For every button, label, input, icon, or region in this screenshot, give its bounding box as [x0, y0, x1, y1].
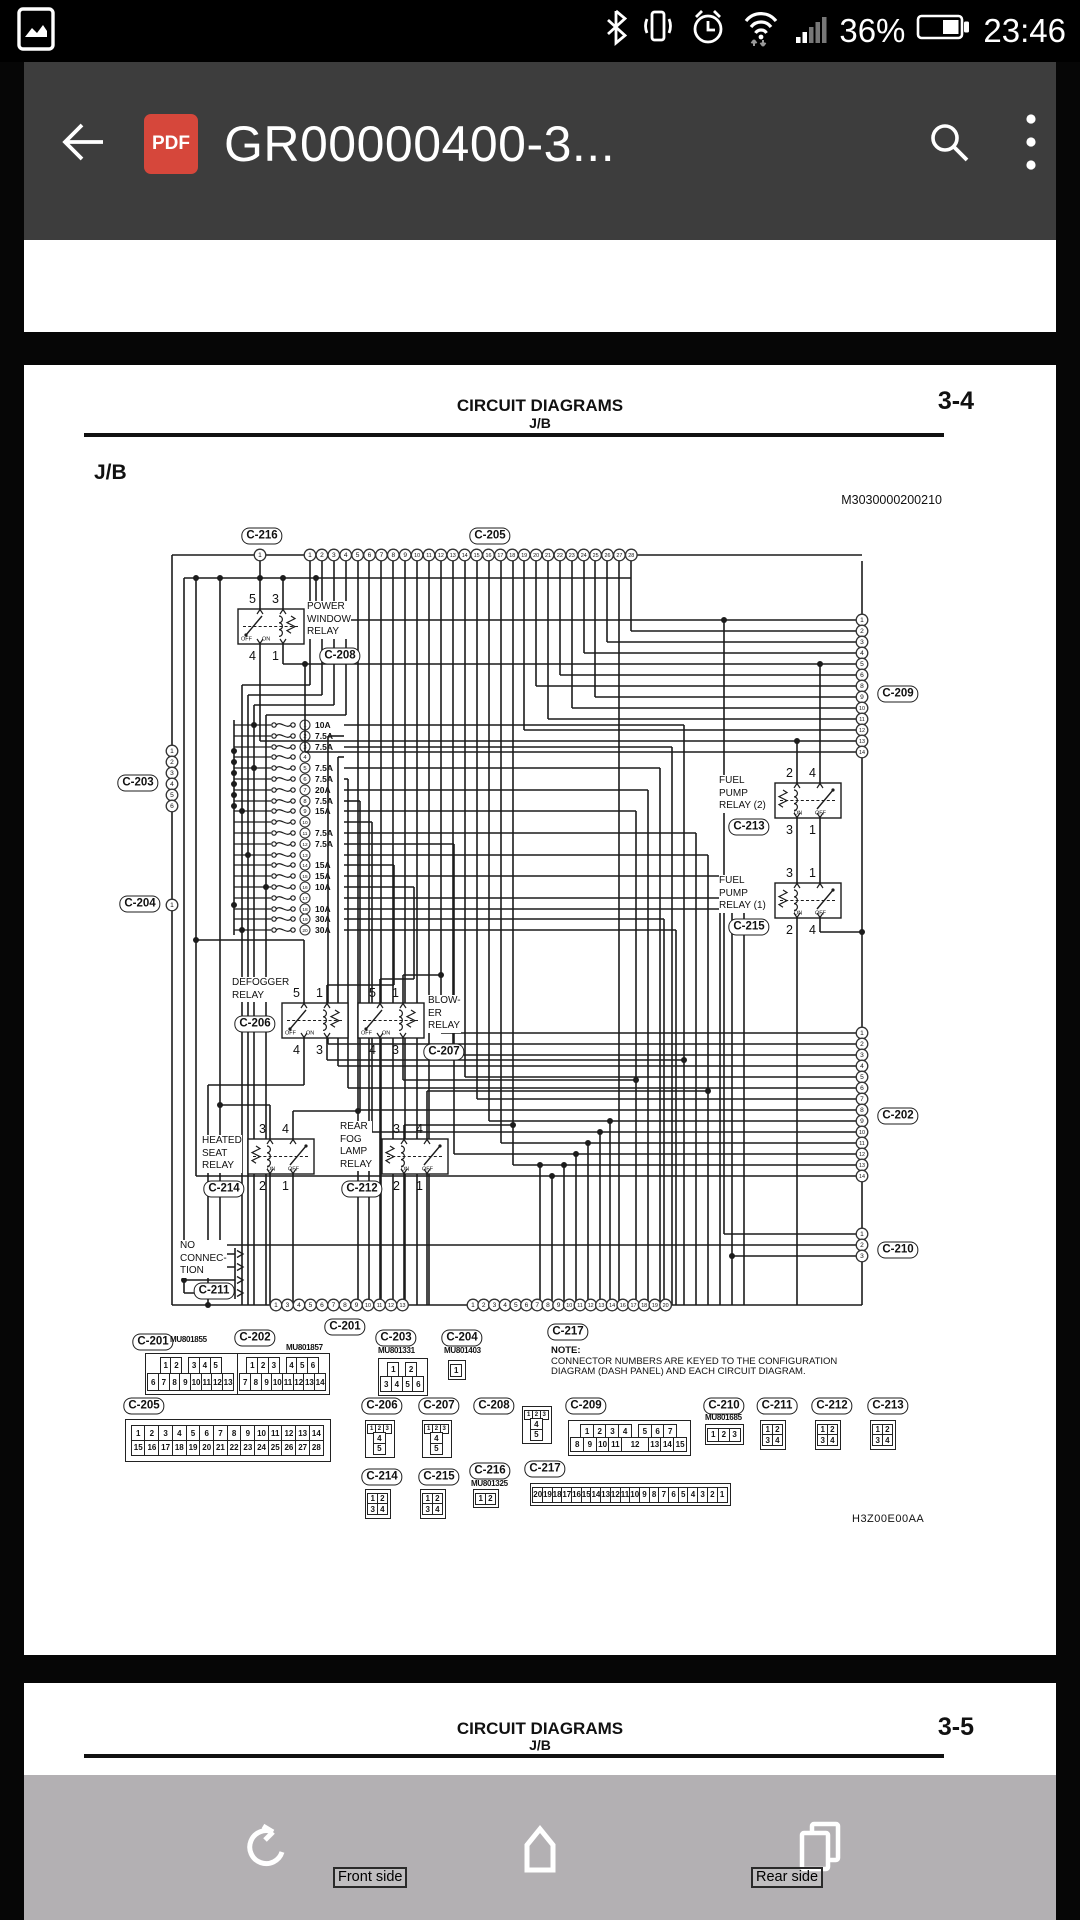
svg-text:2: 2 — [170, 759, 174, 766]
signal-icon — [794, 9, 828, 53]
pinout-label-c-213: C-213 — [867, 1398, 908, 1415]
svg-text:4: 4 — [809, 923, 816, 937]
svg-text:6: 6 — [860, 672, 864, 679]
svg-text:1: 1 — [860, 1231, 864, 1238]
pin-cell: 14 — [309, 1425, 324, 1441]
svg-text:16: 16 — [302, 885, 308, 891]
rear-side-link[interactable]: Rear side — [751, 1867, 823, 1888]
connector-label-c-206: C-206 — [234, 1016, 275, 1033]
svg-text:13: 13 — [598, 1303, 604, 1309]
connector-label-c-211: C-211 — [194, 1283, 235, 1300]
svg-text:4: 4 — [860, 650, 864, 657]
svg-text:1: 1 — [809, 823, 816, 837]
svg-text:11: 11 — [577, 1303, 583, 1309]
svg-text:3: 3 — [392, 1043, 399, 1057]
pinout-label-c-211: C-211 — [757, 1398, 798, 1415]
svg-text:9: 9 — [860, 694, 864, 701]
pin-cell: 4 — [377, 1503, 388, 1515]
svg-text:6: 6 — [320, 1302, 324, 1309]
svg-text:3: 3 — [332, 552, 336, 559]
pin-cell: 5 — [430, 1443, 443, 1455]
svg-text:1: 1 — [308, 552, 312, 559]
battery-icon — [916, 9, 972, 53]
relay-name-c-213: FUELPUMPRELAY (2) — [719, 775, 766, 813]
svg-text:10: 10 — [365, 1303, 371, 1309]
svg-text:3: 3 — [316, 1043, 323, 1057]
part-number-mu801331: MU801331 — [378, 1346, 415, 1355]
svg-text:5: 5 — [293, 986, 300, 1000]
svg-text:3: 3 — [786, 866, 793, 880]
svg-text:13: 13 — [859, 1163, 865, 1169]
svg-text:1: 1 — [392, 986, 399, 1000]
svg-text:10: 10 — [414, 553, 420, 559]
svg-text:1: 1 — [860, 1030, 864, 1037]
svg-text:2: 2 — [320, 552, 324, 559]
svg-text:OFF: OFF — [815, 811, 827, 817]
pinout-label-c-212: C-212 — [811, 1398, 852, 1415]
connector-label-c-204: C-204 — [119, 896, 160, 913]
svg-text:6: 6 — [368, 552, 372, 559]
no-connection-label: NOCONNEC-TION — [180, 1240, 227, 1278]
connector-label-c-210: C-210 — [877, 1242, 918, 1259]
svg-text:1: 1 — [274, 1302, 278, 1309]
svg-text:8: 8 — [546, 1302, 550, 1309]
svg-text:12: 12 — [302, 842, 308, 848]
svg-text:9: 9 — [355, 1302, 359, 1309]
pdf-icon: PDF — [144, 114, 198, 174]
svg-text:7: 7 — [380, 552, 384, 559]
svg-text:14: 14 — [859, 750, 865, 756]
pin-cell: 4 — [882, 1434, 893, 1446]
svg-text:8: 8 — [391, 552, 395, 559]
connector-label-c-216: C-216 — [241, 528, 282, 545]
svg-text:4: 4 — [860, 1063, 864, 1070]
svg-text:4: 4 — [369, 1043, 376, 1057]
pinout-label-c-217: C-217 — [524, 1461, 565, 1478]
svg-text:1: 1 — [170, 748, 174, 755]
svg-text:15: 15 — [302, 874, 308, 880]
status-bar: 36% 23:46 — [0, 0, 1080, 62]
svg-text:3: 3 — [286, 1302, 290, 1309]
svg-text:10: 10 — [302, 820, 308, 826]
pin-cell: 5 — [210, 1357, 222, 1375]
svg-text:5: 5 — [309, 1302, 313, 1309]
part-number-mu801855: MU801855 — [170, 1335, 207, 1344]
pinout-c-206: 12345 — [365, 1420, 395, 1458]
page2-header-title: CIRCUIT DIAGRAMS — [24, 1719, 1056, 1739]
pin-cell: 5 — [373, 1443, 386, 1455]
svg-text:4: 4 — [249, 649, 256, 663]
svg-text:17: 17 — [302, 896, 308, 902]
svg-text:24: 24 — [581, 553, 587, 559]
pdf-page-3-5[interactable]: CIRCUIT DIAGRAMS J/B 3-5 — [24, 1683, 1056, 1775]
pin-cell: 6 — [307, 1357, 319, 1375]
wifi-icon — [739, 6, 783, 56]
svg-text:9: 9 — [303, 809, 306, 815]
svg-text:27: 27 — [616, 553, 622, 559]
svg-text:1: 1 — [282, 1179, 289, 1193]
svg-text:ON: ON — [382, 1031, 390, 1037]
pinout-c-211: 1234 — [760, 1420, 786, 1450]
pin-cell: 15 — [673, 1437, 687, 1452]
svg-text:1: 1 — [258, 552, 262, 559]
svg-text:20: 20 — [663, 1303, 669, 1309]
part-number-mu801857: MU801857 — [286, 1343, 323, 1352]
pinout-label-c-202: C-202 — [234, 1330, 275, 1347]
svg-text:4: 4 — [170, 781, 174, 788]
svg-text:11: 11 — [426, 553, 432, 559]
pin-cell: 4 — [432, 1503, 443, 1515]
relay-name-c-215: FUELPUMPRELAY (1) — [719, 875, 766, 913]
svg-text:ON: ON — [794, 811, 802, 817]
svg-text:5: 5 — [860, 1074, 864, 1081]
svg-text:9: 9 — [557, 1302, 561, 1309]
svg-text:9: 9 — [860, 1118, 864, 1125]
pinout-c-204: 1 — [448, 1360, 466, 1380]
pinout-c-213: 1234 — [870, 1420, 896, 1450]
svg-text:12: 12 — [588, 1303, 594, 1309]
svg-text:8: 8 — [343, 1302, 347, 1309]
pin-cell: 2 — [485, 1493, 496, 1505]
svg-text:4: 4 — [297, 1302, 301, 1309]
svg-text:6: 6 — [525, 1302, 529, 1309]
alarm-icon — [688, 7, 728, 55]
svg-text:16: 16 — [486, 553, 492, 559]
nav-home-button[interactable] — [514, 1822, 566, 1879]
pinout-c-205: 1234567891011121314151617181920212223242… — [125, 1419, 331, 1462]
svg-text:3: 3 — [259, 1122, 266, 1136]
connector-label-c-208: C-208 — [319, 648, 360, 665]
svg-text:6: 6 — [170, 803, 174, 810]
svg-text:7: 7 — [303, 788, 306, 794]
search-button[interactable] — [926, 119, 972, 170]
pinout-c-201: 12345678910111213 — [145, 1353, 238, 1395]
svg-text:7.5A: 7.5A — [315, 796, 333, 806]
bluetooth-icon — [604, 8, 628, 54]
pinout-c-209: 123456789101112131415 — [568, 1420, 691, 1456]
pinout-c-203: 123456 — [378, 1358, 428, 1396]
svg-text:2: 2 — [259, 1179, 266, 1193]
svg-text:19: 19 — [652, 1303, 658, 1309]
svg-text:17: 17 — [497, 553, 503, 559]
front-side-link[interactable]: Front side — [333, 1867, 407, 1888]
overflow-menu-button[interactable] — [1024, 109, 1038, 180]
connector-label-c-217: C-217 — [547, 1324, 588, 1341]
pin-cell: 13 — [222, 1373, 234, 1391]
svg-text:4: 4 — [344, 552, 348, 559]
pin-cell: 1 — [387, 1362, 399, 1378]
svg-text:5: 5 — [369, 986, 376, 1000]
pin-cell: 6 — [412, 1376, 424, 1392]
nav-back-button[interactable] — [238, 1822, 290, 1879]
clock-time: 23:46 — [983, 12, 1066, 50]
relay-name-c-208: POWERWINDOWRELAY — [307, 601, 351, 639]
svg-text:19: 19 — [302, 917, 308, 923]
pinout-label-c-214: C-214 — [361, 1469, 402, 1486]
svg-text:7.5A: 7.5A — [315, 742, 333, 752]
svg-text:13: 13 — [302, 853, 308, 859]
svg-text:25: 25 — [593, 553, 599, 559]
svg-text:3: 3 — [170, 770, 174, 777]
pinout-c-210: 123 — [705, 1424, 744, 1445]
nav-bar: Front side Rear side — [24, 1775, 1056, 1920]
svg-text:2: 2 — [482, 1302, 486, 1309]
circuit-diagram: 110A27.5A37.5A457.5A67.5A720A87.5A915A10… — [24, 365, 1056, 1655]
svg-text:13: 13 — [450, 553, 456, 559]
pin-cell: 5 — [530, 1429, 543, 1441]
svg-text:2: 2 — [786, 766, 793, 780]
svg-text:18: 18 — [641, 1303, 647, 1309]
svg-text:OFF: OFF — [422, 1167, 434, 1173]
svg-text:11: 11 — [377, 1303, 383, 1309]
pinout-label-c-204: C-204 — [441, 1330, 482, 1347]
relay-name-c-206: DEFOGGERRELAY — [232, 977, 289, 1002]
pinout-c-202: 1234567891011121314 — [237, 1353, 330, 1395]
part-number-mu801685: MU801685 — [705, 1413, 742, 1422]
svg-text:26: 26 — [605, 553, 611, 559]
pinout-label-c-215: C-215 — [418, 1469, 459, 1486]
svg-text:1: 1 — [860, 617, 864, 624]
app-toolbar: PDF GR00000400-3... — [24, 62, 1056, 240]
svg-text:3: 3 — [860, 1253, 864, 1260]
pinout-c-216: 12 — [473, 1489, 499, 1508]
svg-text:9: 9 — [403, 552, 407, 559]
svg-text:5: 5 — [249, 592, 256, 606]
relay-name-c-212: REARFOGLAMPRELAY — [340, 1121, 372, 1171]
pinout-c-217: 2019181716151413121110987654321 — [530, 1483, 731, 1506]
svg-text:2: 2 — [393, 1179, 400, 1193]
pinout-label-c-203: C-203 — [375, 1330, 416, 1347]
svg-text:17: 17 — [631, 1303, 637, 1309]
pin-cell: 4 — [772, 1434, 783, 1446]
pdf-page-previous[interactable] — [24, 240, 1056, 332]
pinout-c-208: 12345 — [522, 1406, 552, 1444]
svg-text:OFF: OFF — [285, 1031, 297, 1037]
svg-text:10: 10 — [859, 1130, 865, 1136]
svg-text:7: 7 — [332, 1302, 336, 1309]
svg-text:5: 5 — [303, 766, 306, 772]
svg-text:21: 21 — [545, 553, 551, 559]
page2-header-rule — [84, 1754, 944, 1758]
page2-header-sub: J/B — [24, 1737, 1056, 1753]
pinout-c-214: 1234 — [365, 1489, 391, 1519]
svg-text:ON: ON — [267, 1167, 275, 1173]
footer-code: H3Z00E00AA — [852, 1513, 924, 1525]
svg-text:12: 12 — [859, 728, 865, 734]
svg-text:19: 19 — [521, 553, 527, 559]
svg-text:2: 2 — [860, 628, 864, 635]
relay-name-c-214: HEATEDSEATRELAY — [202, 1135, 242, 1173]
svg-text:ON: ON — [262, 637, 270, 643]
svg-text:2: 2 — [860, 1242, 864, 1249]
pinout-label-c-216: C-216 — [469, 1463, 510, 1480]
battery-percent: 36% — [839, 12, 905, 50]
svg-text:22: 22 — [557, 553, 563, 559]
pinout-c-212: 1234 — [815, 1420, 841, 1450]
svg-text:1: 1 — [809, 866, 816, 880]
svg-text:7: 7 — [535, 1302, 539, 1309]
svg-text:3: 3 — [272, 592, 279, 606]
svg-text:ON: ON — [794, 911, 802, 917]
svg-text:OFF: OFF — [288, 1167, 300, 1173]
connector-label-c-212: C-212 — [341, 1181, 382, 1198]
note-line-3: DIAGRAM (DASH PANEL) AND EACH CIRCUIT DI… — [551, 1366, 806, 1377]
svg-text:3: 3 — [493, 1302, 497, 1309]
svg-text:20: 20 — [302, 928, 308, 934]
pin-cell: 2 — [405, 1362, 417, 1378]
svg-text:15: 15 — [474, 553, 480, 559]
svg-text:11: 11 — [303, 831, 308, 837]
pin-cell: 3 — [729, 1428, 741, 1442]
svg-text:4: 4 — [416, 1122, 423, 1136]
svg-text:13: 13 — [859, 739, 865, 745]
svg-text:7.5A: 7.5A — [315, 839, 333, 849]
connector-label-c-213: C-213 — [728, 819, 769, 836]
pin-cell: 3 — [268, 1357, 280, 1375]
connector-label-c-207: C-207 — [423, 1044, 464, 1061]
svg-text:10A: 10A — [315, 720, 331, 730]
svg-text:12: 12 — [859, 1152, 865, 1158]
svg-text:7.5A: 7.5A — [315, 774, 333, 784]
connector-label-c-209: C-209 — [877, 686, 918, 703]
svg-text:18: 18 — [302, 907, 308, 913]
svg-text:8: 8 — [303, 799, 306, 805]
svg-text:13: 13 — [400, 1303, 406, 1309]
svg-text:ON: ON — [401, 1167, 409, 1173]
svg-text:18: 18 — [509, 553, 515, 559]
connector-label-c-205: C-205 — [469, 528, 510, 545]
svg-text:4: 4 — [282, 1122, 289, 1136]
pin-cell: 2 — [170, 1357, 182, 1375]
svg-text:4: 4 — [809, 766, 816, 780]
page2-number: 3-5 — [938, 1713, 974, 1742]
svg-text:6: 6 — [303, 777, 306, 783]
svg-text:5: 5 — [860, 661, 864, 668]
pinout-label-c-205: C-205 — [123, 1398, 164, 1415]
svg-text:4: 4 — [293, 1043, 300, 1057]
svg-text:2: 2 — [786, 923, 793, 937]
svg-text:3: 3 — [786, 823, 793, 837]
svg-text:1: 1 — [170, 902, 174, 909]
pinout-label-c-210: C-210 — [703, 1398, 744, 1415]
svg-text:11: 11 — [859, 1141, 865, 1147]
pinout-label-c-209: C-209 — [565, 1398, 606, 1415]
document-title: GR00000400-3... — [224, 115, 926, 173]
connector-label-c-201: C-201 — [324, 1319, 365, 1336]
svg-text:7.5A: 7.5A — [315, 763, 333, 773]
pin-cell: 28 — [309, 1440, 324, 1456]
connector-label-c-202: C-202 — [877, 1108, 918, 1125]
svg-text:12: 12 — [438, 553, 444, 559]
part-number-mu801325: MU801325 — [471, 1479, 508, 1488]
vibrate-icon — [639, 8, 677, 54]
part-number-mu801403: MU801403 — [444, 1346, 481, 1355]
svg-text:8: 8 — [860, 683, 864, 690]
svg-text:5: 5 — [356, 552, 360, 559]
svg-text:23: 23 — [569, 553, 575, 559]
svg-text:7: 7 — [860, 1096, 864, 1103]
pdf-page-3-4[interactable]: CIRCUIT DIAGRAMS J/B 3-4 J/B M3030000200… — [24, 365, 1056, 1655]
svg-text:3: 3 — [860, 639, 864, 646]
svg-text:20: 20 — [533, 553, 539, 559]
pinout-label-c-206: C-206 — [361, 1398, 402, 1415]
pin-cell: 1 — [717, 1487, 728, 1503]
svg-text:11: 11 — [859, 717, 865, 723]
relay-name-c-207: BLOW-ERRELAY — [428, 995, 461, 1033]
svg-text:OFF: OFF — [361, 1031, 373, 1037]
svg-text:6: 6 — [860, 1085, 864, 1092]
svg-text:8: 8 — [860, 1107, 864, 1114]
note-line-1: NOTE: — [551, 1345, 581, 1356]
connector-label-c-215: C-215 — [728, 919, 769, 936]
pinout-label-c-208: C-208 — [473, 1398, 514, 1415]
svg-text:3: 3 — [860, 1052, 864, 1059]
svg-text:14: 14 — [462, 553, 468, 559]
svg-text:1: 1 — [471, 1302, 475, 1309]
svg-text:2: 2 — [860, 1041, 864, 1048]
pinout-c-215: 1234 — [420, 1489, 446, 1519]
svg-text:12: 12 — [388, 1303, 394, 1309]
svg-text:1: 1 — [316, 986, 323, 1000]
svg-text:OFF: OFF — [815, 911, 827, 917]
svg-text:5: 5 — [514, 1302, 518, 1309]
connector-label-c-214: C-214 — [203, 1181, 244, 1198]
svg-text:14: 14 — [302, 863, 308, 869]
svg-text:14: 14 — [859, 1174, 865, 1180]
svg-text:1: 1 — [416, 1179, 423, 1193]
svg-text:10: 10 — [566, 1303, 572, 1309]
svg-text:14: 14 — [609, 1303, 615, 1309]
pinout-label-c-201: C-201 — [132, 1334, 173, 1351]
back-button[interactable] — [58, 119, 108, 170]
svg-text:3: 3 — [393, 1122, 400, 1136]
pinout-label-c-207: C-207 — [418, 1398, 459, 1415]
pinout-c-207: 12345 — [422, 1420, 452, 1458]
svg-text:1: 1 — [272, 649, 279, 663]
svg-text:5: 5 — [170, 792, 174, 799]
svg-text:OFF: OFF — [241, 637, 253, 643]
svg-text:16: 16 — [620, 1303, 626, 1309]
svg-text:ON: ON — [306, 1031, 314, 1037]
pin-cell: 14 — [314, 1373, 326, 1391]
svg-text:4: 4 — [503, 1302, 507, 1309]
svg-text:10: 10 — [859, 706, 865, 712]
pin-cell: 1 — [450, 1364, 462, 1377]
connector-label-c-203: C-203 — [117, 775, 158, 792]
pin-cell: 4 — [827, 1434, 838, 1446]
svg-text:7.5A: 7.5A — [315, 828, 333, 838]
screenshot-icon — [14, 6, 60, 57]
svg-text:28: 28 — [628, 553, 634, 559]
pin-cell: 12 — [621, 1437, 649, 1452]
